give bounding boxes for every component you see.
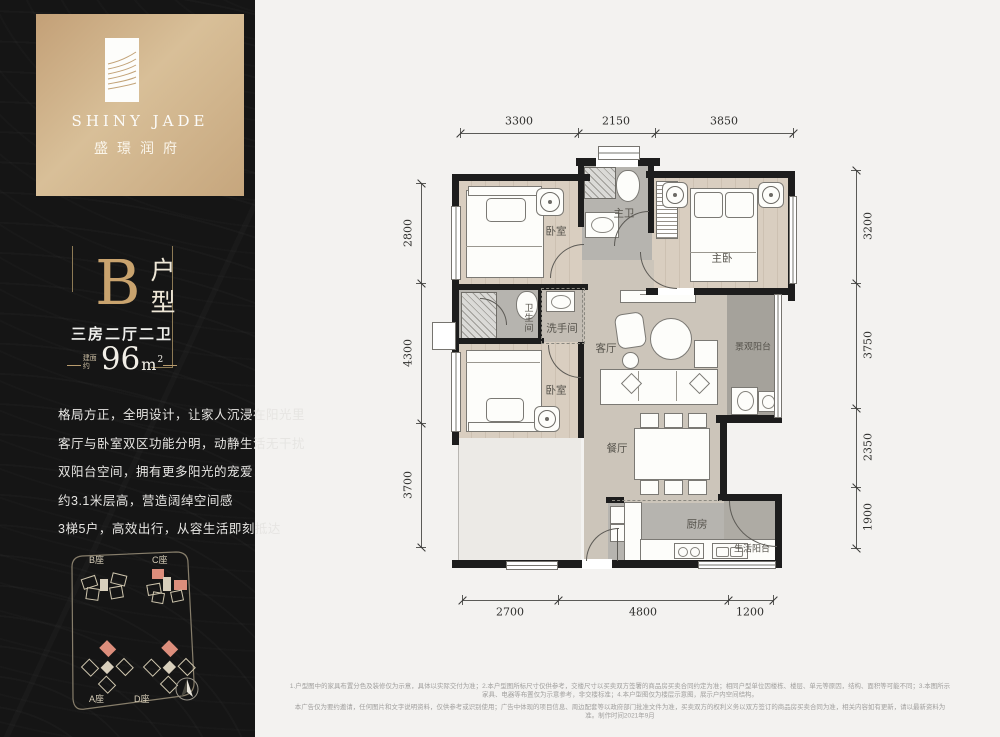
headboard-icon — [468, 186, 542, 196]
blanket-line — [466, 246, 542, 247]
room-label-bedroom-mid: 卧室 — [546, 383, 567, 398]
brand-logo-block: SHINY JADE 盛璟润府 — [36, 14, 244, 196]
entry-door-unit — [598, 146, 640, 160]
building-B — [81, 573, 127, 600]
dim-bottom-3: 1200 — [736, 606, 764, 619]
area-exponent: 2 — [157, 355, 163, 365]
dim-tick — [460, 128, 461, 138]
window — [789, 196, 797, 284]
wall — [452, 338, 544, 344]
disclaimer-line-2: 本广告仅为要约邀请，任何图片和文字说明资料，仅供参考或识别使用；广告中体现的项目… — [289, 704, 951, 721]
wall — [578, 165, 584, 227]
dimension-line-left — [421, 183, 422, 547]
dimension-line-top — [460, 133, 793, 134]
dashed-line — [582, 290, 583, 342]
armchair-icon — [614, 311, 648, 350]
room-label-master-bath: 主卫 — [614, 206, 635, 221]
chair-icon — [640, 480, 659, 495]
dining-table-icon — [634, 428, 710, 480]
window — [506, 561, 558, 570]
dim-tick — [416, 183, 426, 184]
building-label-B: B座 — [89, 553, 104, 566]
room-label-bedroom-top: 卧室 — [546, 224, 567, 239]
dim-tick — [851, 487, 861, 488]
washing-machine-icon — [731, 387, 758, 415]
dim-tick — [655, 128, 656, 138]
pillow-icon — [486, 198, 526, 222]
dim-tick — [416, 283, 426, 284]
shower-icon — [584, 167, 616, 199]
area-unit: m — [141, 355, 156, 374]
brand-name-en: SHINY JADE — [36, 112, 244, 130]
unit-frame-left — [72, 246, 73, 292]
dashed-zone — [541, 288, 585, 344]
dim-bottom-1: 2700 — [496, 606, 524, 619]
description-line: 客厅与卧室双区功能分明，动静生活无干扰 — [58, 430, 253, 459]
chair-icon — [688, 480, 707, 495]
building-label-D: D座 — [134, 692, 150, 705]
description-line: 约3.1米层高，营造阔绰空间感 — [58, 487, 253, 516]
chair-icon — [640, 413, 659, 428]
description-block: 格局方正，全明设计，让家人沉浸在阳光里 客厅与卧室双区功能分明，动静生活无干扰 … — [58, 401, 253, 544]
dim-tick — [851, 170, 861, 171]
ceiling-fan-icon — [534, 406, 560, 432]
ceiling-fan-icon — [758, 182, 784, 208]
dashed-line — [612, 500, 722, 501]
building-A — [81, 640, 134, 693]
chair-icon — [664, 480, 683, 495]
ceiling-fan-icon — [662, 182, 688, 208]
building-label-A: A座 — [89, 692, 104, 705]
compass-icon — [174, 676, 200, 702]
room-lightwell — [458, 438, 581, 565]
wall — [646, 171, 795, 178]
brand-name-cn: 盛璟润府 — [36, 138, 244, 158]
ceiling-fan-icon — [536, 188, 564, 216]
dim-top-3: 3850 — [710, 115, 738, 128]
pillow-icon — [725, 192, 754, 218]
dim-tick — [416, 547, 426, 548]
toilet-icon — [616, 170, 640, 202]
coffee-table-icon — [650, 318, 692, 360]
dim-tick — [851, 283, 861, 284]
dim-left-2: 4300 — [402, 339, 415, 367]
description-line: 双阳台空间，拥有更多阳光的宠爱 — [58, 458, 253, 487]
room-label-kitchen: 厨房 — [687, 517, 708, 532]
headboard-icon — [468, 422, 540, 432]
dim-tick — [558, 595, 559, 605]
dim-tick — [851, 408, 861, 409]
sofa-cushion-line — [676, 371, 677, 401]
area-dash-left — [67, 365, 81, 366]
room-label-dining: 餐厅 — [607, 441, 628, 456]
stove-icon — [674, 543, 704, 559]
dim-tick — [773, 595, 774, 605]
dim-tick — [851, 548, 861, 549]
pillow-icon — [694, 192, 723, 218]
side-table-icon — [694, 340, 718, 368]
room-label-utility-balcony: 生活阳台 — [734, 542, 770, 555]
building-C — [147, 569, 187, 604]
room-label-living: 客厅 — [596, 341, 617, 356]
room-label-washroom: 洗手间 — [546, 321, 578, 336]
door-opening — [658, 288, 694, 295]
unit-type-letter: B — [95, 252, 141, 314]
dim-right-3: 2350 — [862, 433, 875, 461]
footer-disclaimer: 1.户型图中的家具布置分色及装修仅为示意，具体以实际交付为准；2.本户型图所标尺… — [260, 682, 980, 724]
chair-icon — [688, 413, 707, 428]
ac-unit-icon — [432, 322, 456, 350]
window — [698, 561, 776, 569]
window — [451, 206, 461, 280]
unit-area-row: 建面约 96 m 2 — [52, 344, 192, 375]
dim-top-2: 2150 — [602, 115, 630, 128]
dim-left-3: 3700 — [402, 471, 415, 499]
wall — [452, 174, 590, 181]
dim-tick — [578, 128, 579, 138]
area-dash-right — [163, 365, 177, 366]
page: SHINY JADE 盛璟润府 B 户型 三房二厅二卫 建面约 96 m 2 格… — [0, 0, 1000, 737]
dimension-line-right — [856, 170, 857, 548]
area-number: 96 — [101, 344, 140, 375]
chair-icon — [664, 413, 683, 428]
disclaimer-line-1: 1.户型图中的家具布置分色及装修仅为示意，具体以实际交付为准；2.本户型图所标尺… — [289, 683, 951, 700]
dim-tick — [462, 595, 463, 605]
dim-top-1: 3300 — [505, 115, 533, 128]
wall — [718, 494, 782, 501]
pillow-icon — [486, 398, 524, 422]
window — [451, 352, 461, 432]
description-line: 3梯5户，高效出行，从容生活即刻抵达 — [58, 515, 253, 544]
brand-logo-icon — [105, 38, 139, 102]
room-label-view-balcony: 景观阳台 — [735, 340, 771, 353]
dim-tick — [416, 423, 426, 424]
area-prefix: 建面约 — [83, 355, 98, 373]
door-leaf — [617, 528, 618, 561]
dim-bottom-2: 4800 — [629, 606, 657, 619]
stool-icon — [622, 352, 639, 369]
wall — [720, 422, 727, 500]
dim-right-2: 3750 — [862, 331, 875, 359]
description-line: 格局方正，全明设计，让家人沉浸在阳光里 — [58, 401, 253, 430]
balcony-glass — [774, 294, 782, 418]
building-label-C: C座 — [152, 553, 168, 566]
blanket-line — [466, 362, 540, 363]
room-label-bath-second: 卫生间 — [523, 303, 536, 333]
dim-left-1: 2800 — [402, 219, 415, 247]
dim-tick — [793, 128, 794, 138]
dim-right-1: 3200 — [862, 212, 875, 240]
dim-tick — [728, 595, 729, 605]
room-label-master-bedroom: 主卧 — [712, 251, 733, 266]
dim-right-4: 1900 — [862, 503, 875, 531]
